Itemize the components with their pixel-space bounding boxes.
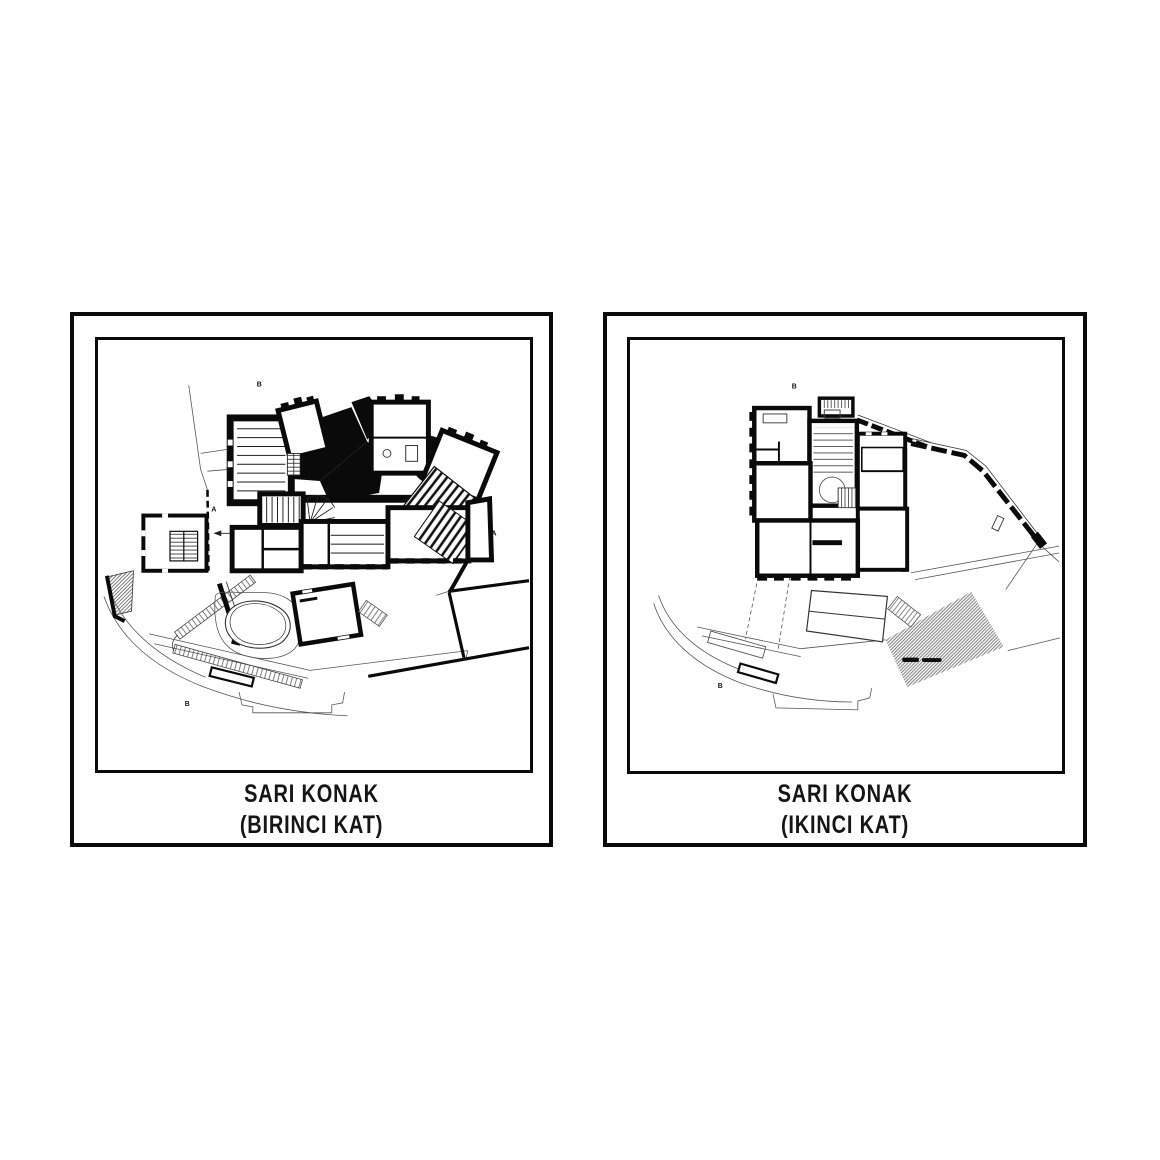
left-plan-inner-frame: B A A B (95, 337, 533, 773)
right-caption-line2: (IKINCI KAT) (651, 810, 1038, 841)
rooms-lower-middle (301, 521, 388, 566)
hatch-area-label-smudge (922, 658, 942, 662)
hatch-area-label-smudge (902, 658, 919, 662)
garden-pavilion (293, 584, 361, 644)
top-bay (819, 398, 853, 418)
garden-wall (911, 439, 1047, 549)
main-building (230, 393, 500, 591)
room-bottom-right (858, 509, 907, 570)
room-mid-left (754, 463, 810, 520)
central-hall (810, 421, 862, 508)
section-marker-left: A (211, 507, 216, 514)
room-top-left (754, 408, 809, 463)
left-caption-line2: (BIRINCI KAT) (118, 810, 504, 841)
drawing-sheet: B A A B SARI KONAK (BIRINCI KAT) (0, 0, 1160, 1160)
right-plan-inner-frame: B B (627, 337, 1065, 774)
suite-top-right (371, 394, 428, 473)
door-arrow-icon (213, 530, 221, 536)
right-plan-caption: SARI KONAK (IKINCI KAT) (603, 779, 1087, 841)
garden-stair (888, 596, 921, 627)
section-marker-top: B (792, 383, 797, 390)
annex-building (143, 516, 232, 571)
right-wing (858, 434, 905, 509)
rooms-lower-right (388, 501, 478, 564)
section-marker-right: A (492, 530, 497, 537)
ladder-detail (287, 453, 300, 475)
parcel-boundary (368, 581, 529, 677)
hatched-slope (107, 571, 134, 621)
building-second-floor (752, 398, 931, 578)
room-bottom (757, 520, 858, 575)
left-plan-caption: SARI KONAK (BIRINCI KAT) (70, 779, 553, 841)
section-marker-bottom: B (718, 683, 723, 690)
terrace-planter-dark (738, 664, 778, 683)
right-plan-drawing: B B (630, 340, 1062, 771)
section-marker-bottom: B (185, 701, 190, 708)
left-caption-line1: SARI KONAK (118, 779, 504, 810)
pavilion-roof (807, 591, 888, 642)
section-marker-top: B (257, 381, 262, 388)
central-stair (260, 494, 303, 526)
gate-detail (992, 516, 1004, 531)
pavilion-stairs (358, 600, 387, 626)
left-plan-drawing: B A A B (98, 340, 530, 770)
rooms-lower-left (232, 527, 301, 570)
right-caption-line1: SARI KONAK (651, 779, 1038, 810)
